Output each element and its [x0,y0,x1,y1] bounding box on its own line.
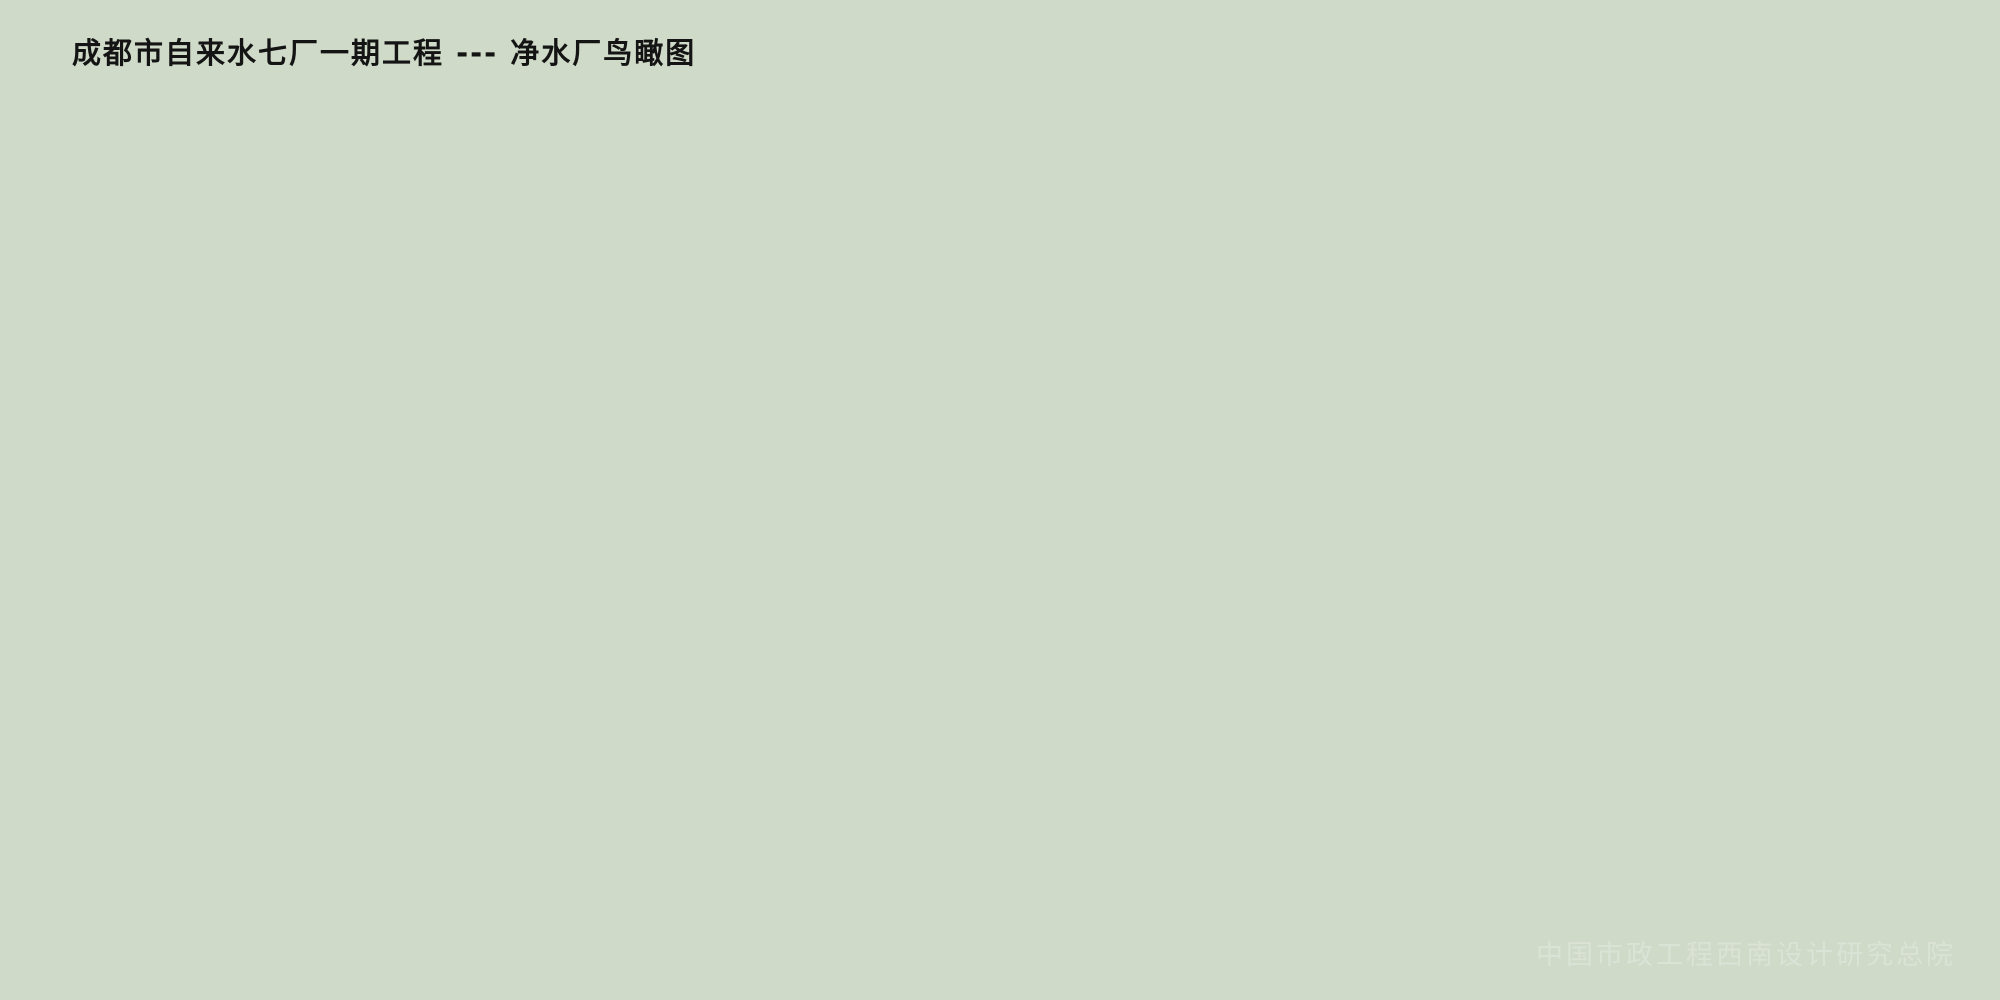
aerial-scene [0,0,2000,1000]
watermark: 中国市政工程西南设计研究总院 [1536,933,1956,972]
rendering-stage: 成都市自来水七厂一期工程 --- 净水厂鸟瞰图 中国市政工程西南设计研究总院 [0,0,2000,1000]
page-title: 成都市自来水七厂一期工程 --- 净水厂鸟瞰图 [72,30,696,72]
